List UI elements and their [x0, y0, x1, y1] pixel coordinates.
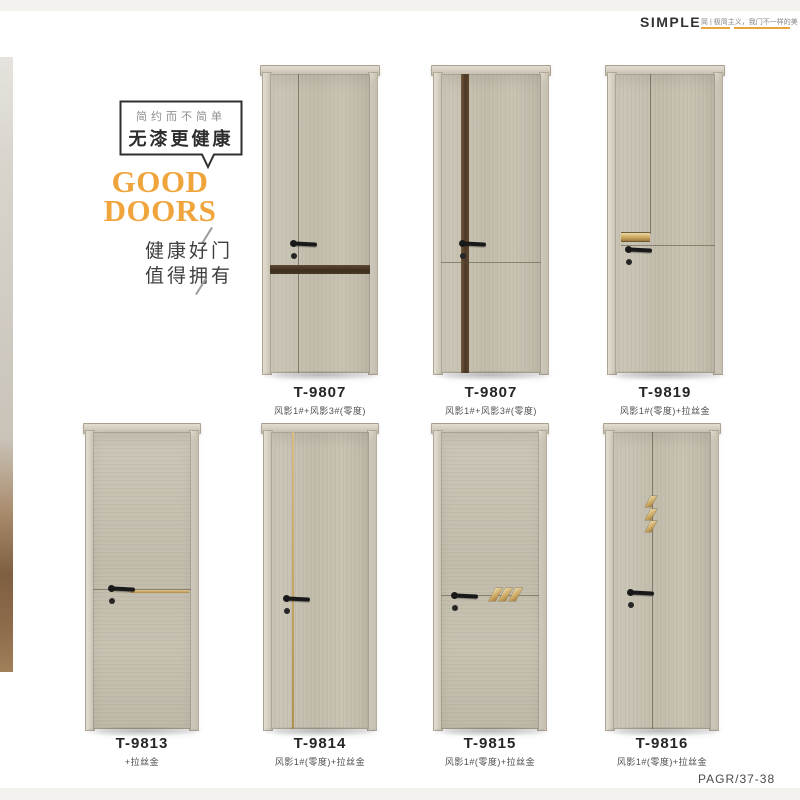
top-margin-band: [0, 0, 800, 11]
product-label-1: T-9807 风影1#+风影3#(零度): [235, 384, 405, 417]
page-reference: PAGR/37-38: [698, 772, 775, 786]
door-slab: [613, 432, 711, 729]
section-title: GOOD DOORS: [93, 167, 227, 226]
product-model: T-9807: [406, 384, 576, 401]
handle-knob: [284, 608, 290, 614]
product-label-7: T-9816 风影1#(零度)+拉丝金: [577, 735, 747, 768]
product-model: T-9816: [577, 735, 747, 752]
product-finish: 风影1#+风影3#(零度): [235, 404, 405, 417]
handle-knob: [291, 253, 297, 259]
dark-horizontal-band: [270, 265, 370, 274]
speech-bubble: 简约而不简单 无漆更健康: [119, 100, 243, 170]
gold-slash-3: [645, 521, 657, 532]
handle-knob: [109, 598, 115, 604]
product-model: T-9813: [57, 735, 227, 752]
door-slab: [93, 432, 191, 729]
door-card-5: [263, 423, 377, 731]
handle-knob: [628, 602, 634, 608]
gold-bar-accent: [621, 232, 650, 242]
product-label-2: T-9807 风影1#+风影3#(零度): [406, 384, 576, 417]
product-finish: +拉丝金: [57, 755, 227, 768]
bubble-subtext: 简约而不简单: [119, 108, 243, 124]
door-handle: [283, 595, 313, 615]
section-title-line2: DOORS: [93, 196, 227, 225]
product-finish: 风影1#(零度)+拉丝金: [235, 755, 405, 768]
handle-lever: [286, 597, 310, 602]
handle-lever: [462, 241, 486, 246]
groove-vertical: [650, 74, 651, 234]
groove-vertical: [298, 74, 299, 373]
door-card-7: [605, 423, 719, 731]
product-label-3: T-9819 风影1#(零度)+拉丝金: [580, 384, 750, 417]
gold-slash-1: [645, 496, 657, 507]
bottom-margin-band: [0, 788, 800, 800]
product-finish: 风影1#+风影3#(零度): [406, 404, 576, 417]
door-handle: [459, 240, 489, 260]
door-slab: [441, 74, 541, 373]
handle-lever: [293, 241, 317, 246]
product-finish: 风影1#(零度)+拉丝金: [405, 755, 575, 768]
door-card-1: [262, 65, 378, 375]
door-slab: [271, 432, 369, 729]
product-label-4: T-9813 +拉丝金: [57, 735, 227, 768]
gold-inlay-line: [130, 590, 189, 593]
door-slab: [441, 432, 539, 729]
door-card-4: [85, 423, 199, 731]
door-card-2: [433, 65, 549, 375]
dark-vertical-stripe: [461, 74, 469, 373]
tagline-underline-1: [701, 27, 730, 29]
product-finish: 风影1#(零度)+拉丝金: [580, 404, 750, 417]
groove-horizontal: [441, 262, 541, 263]
product-model: T-9815: [405, 735, 575, 752]
door-slab: [615, 74, 715, 373]
handle-knob: [460, 253, 466, 259]
door-card-6: [433, 423, 547, 731]
brand-tagline: 简 | 极简主义，我门不一样的美: [701, 17, 793, 27]
door-handle: [108, 585, 138, 605]
product-model: T-9819: [580, 384, 750, 401]
door-handle: [625, 246, 655, 266]
gold-inlay-line-vertical: [292, 432, 294, 729]
product-finish: 风影1#(零度)+拉丝金: [577, 755, 747, 768]
section-title-line1: GOOD: [93, 167, 227, 196]
door-slab: [270, 74, 370, 373]
door-handle: [290, 240, 320, 260]
handle-knob: [452, 605, 458, 611]
handle-lever: [630, 591, 654, 596]
catalog-page: SIMPLE 简 | 极简主义，我门不一样的美 简约而不简单 无漆更健康 GOO…: [0, 0, 800, 800]
bubble-maintext: 无漆更健康: [119, 125, 243, 151]
door-handle: [627, 589, 657, 609]
handle-lever: [628, 247, 652, 252]
door-card-3: [607, 65, 723, 375]
tagline-underline-2: [734, 27, 790, 29]
product-model: T-9807: [235, 384, 405, 401]
product-model: T-9814: [235, 735, 405, 752]
handle-lever: [454, 594, 478, 599]
brand-wordmark: SIMPLE: [640, 14, 701, 30]
handle-knob: [626, 259, 632, 265]
slogan-line2: 值得拥有: [136, 264, 242, 289]
slogan-line1: 健康好门: [136, 239, 242, 264]
slogan: 健康好门 值得拥有: [136, 239, 242, 289]
gold-slash-2: [645, 509, 657, 520]
door-handle: [451, 592, 481, 612]
product-label-6: T-9815 风影1#(零度)+拉丝金: [405, 735, 575, 768]
adjacent-page-edge: [0, 57, 13, 672]
groove-vertical: [652, 432, 653, 729]
product-label-5: T-9814 风影1#(零度)+拉丝金: [235, 735, 405, 768]
